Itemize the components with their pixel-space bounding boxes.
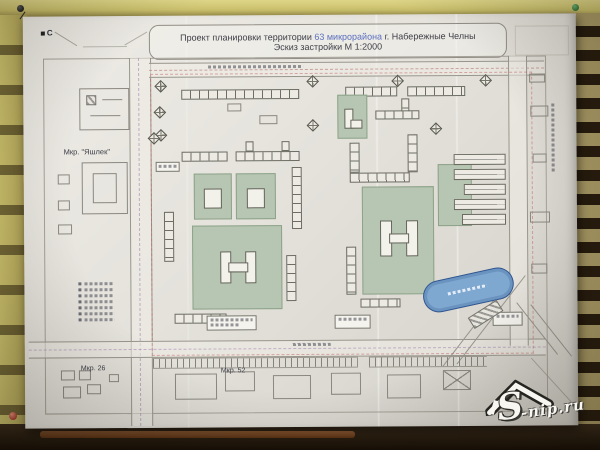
building-outline <box>102 99 122 100</box>
pushpin-green-icon <box>572 4 579 11</box>
building-outline <box>90 115 120 116</box>
north-arrow-icon <box>41 32 45 36</box>
apartment-building <box>346 247 356 295</box>
school-wing <box>390 234 408 242</box>
kindergarten-site <box>194 173 232 219</box>
plot-outline <box>175 374 217 400</box>
legend-swatch <box>78 300 81 303</box>
plot-outline <box>331 373 361 395</box>
label-mkr-26: Мкр. 26 <box>81 365 106 373</box>
building-outline <box>86 95 96 105</box>
garage-block <box>109 374 119 382</box>
building-outline <box>79 88 129 130</box>
legend-text <box>84 300 114 303</box>
annotation-box <box>156 162 180 172</box>
label-yashlek: Мкр. "Яшлек" <box>64 148 111 156</box>
pushpin-black-icon <box>17 5 24 12</box>
annotation-text <box>497 315 519 318</box>
public-building <box>454 154 506 165</box>
apartment-building <box>350 172 410 182</box>
title-line-2: Эскиз застройки М 1:2000 <box>274 41 382 52</box>
legend-text <box>84 288 114 291</box>
kindergarten-building <box>351 121 361 128</box>
north-arrow: С <box>41 29 53 38</box>
garage-block <box>87 384 101 394</box>
legend-item <box>78 288 114 291</box>
plot-outline <box>387 374 421 398</box>
building-outline <box>259 115 277 124</box>
apartment-building <box>164 212 174 262</box>
public-building <box>454 199 506 210</box>
kindergarten-site <box>337 95 367 139</box>
public-building <box>464 184 506 195</box>
building-outline <box>530 105 548 116</box>
title-suffix: г. Набережные Челны <box>382 30 476 41</box>
building-outline <box>58 224 72 234</box>
crossed-plot <box>443 370 471 390</box>
building-outline <box>58 174 70 184</box>
legend-swatch <box>79 318 82 321</box>
plot-outline <box>273 375 311 399</box>
legend-item <box>78 294 114 297</box>
legend-swatch <box>78 288 81 291</box>
legend-swatch <box>78 294 81 297</box>
apartment-building <box>407 86 465 96</box>
legend <box>78 282 114 324</box>
sketch-line <box>124 32 147 46</box>
sketch-line <box>55 32 78 46</box>
school-site <box>362 186 435 294</box>
map-sheet: Проект планировки территории 63 микрорай… <box>23 13 579 428</box>
school-wing <box>229 263 247 271</box>
title-highlight: 63 микрорайона <box>314 31 382 41</box>
corner-stamp-box <box>515 25 569 55</box>
legend-item <box>78 300 114 303</box>
pond-label-text <box>447 284 487 295</box>
annotation-text <box>211 323 240 326</box>
annotation-text <box>211 318 253 321</box>
legend-text <box>85 318 115 321</box>
apartment-building <box>375 110 419 119</box>
photo-scene: Проект планировки территории 63 микрорай… <box>0 0 600 450</box>
legend-item <box>79 312 115 315</box>
building-outline <box>82 162 128 214</box>
public-building <box>462 214 506 225</box>
building-outline <box>533 153 547 162</box>
kindergarten-site <box>236 173 276 219</box>
building-outline <box>531 263 547 273</box>
legend-swatch <box>78 282 81 285</box>
annotation-text <box>159 165 177 168</box>
legend-item <box>79 318 115 321</box>
sketch-line <box>83 46 127 47</box>
public-building <box>454 169 506 180</box>
wood-rail <box>40 431 355 438</box>
pushpin-red-icon <box>9 412 17 420</box>
apartment-building <box>181 89 299 100</box>
building-outline <box>58 200 70 210</box>
apartment-building <box>350 143 360 173</box>
school-wing <box>407 221 417 255</box>
apartment-building <box>360 298 400 307</box>
legend-text <box>85 306 115 309</box>
legend-text <box>84 294 114 297</box>
label-mkr-52: Мкр. 52 <box>221 367 246 375</box>
north-label: С <box>47 29 53 38</box>
annotation-text <box>339 318 367 321</box>
school-building <box>381 221 417 255</box>
legend-swatch <box>79 306 82 309</box>
building-outline <box>93 173 117 203</box>
annotation-box <box>207 315 257 330</box>
garage-row <box>369 356 487 368</box>
legend-item <box>79 306 115 309</box>
watermark-logo: S -nip.ru <box>482 370 600 450</box>
title-block: Проект планировки территории 63 микрорай… <box>149 23 507 60</box>
building-outline <box>227 103 241 111</box>
apartment-building <box>407 134 417 172</box>
building-outline <box>530 211 550 222</box>
school-building <box>221 252 255 282</box>
apartment-building <box>286 255 296 301</box>
garage-row <box>153 357 358 369</box>
legend-text <box>85 312 115 315</box>
legend-item <box>78 282 114 285</box>
school-site <box>192 225 283 310</box>
annotation-box <box>335 315 371 329</box>
garage-block <box>63 386 81 398</box>
kindergarten-building <box>205 189 221 207</box>
kindergarten-building <box>248 189 264 207</box>
legend-text <box>84 282 114 285</box>
school-wing <box>246 252 255 282</box>
garage-block <box>61 370 75 380</box>
apartment-building <box>182 151 228 161</box>
building-outline <box>529 74 545 83</box>
street-name-text-vertical <box>551 103 554 173</box>
apartment-building <box>236 151 300 161</box>
street-name-text <box>208 65 303 69</box>
legend-swatch <box>79 312 82 315</box>
apartment-building <box>292 167 302 229</box>
